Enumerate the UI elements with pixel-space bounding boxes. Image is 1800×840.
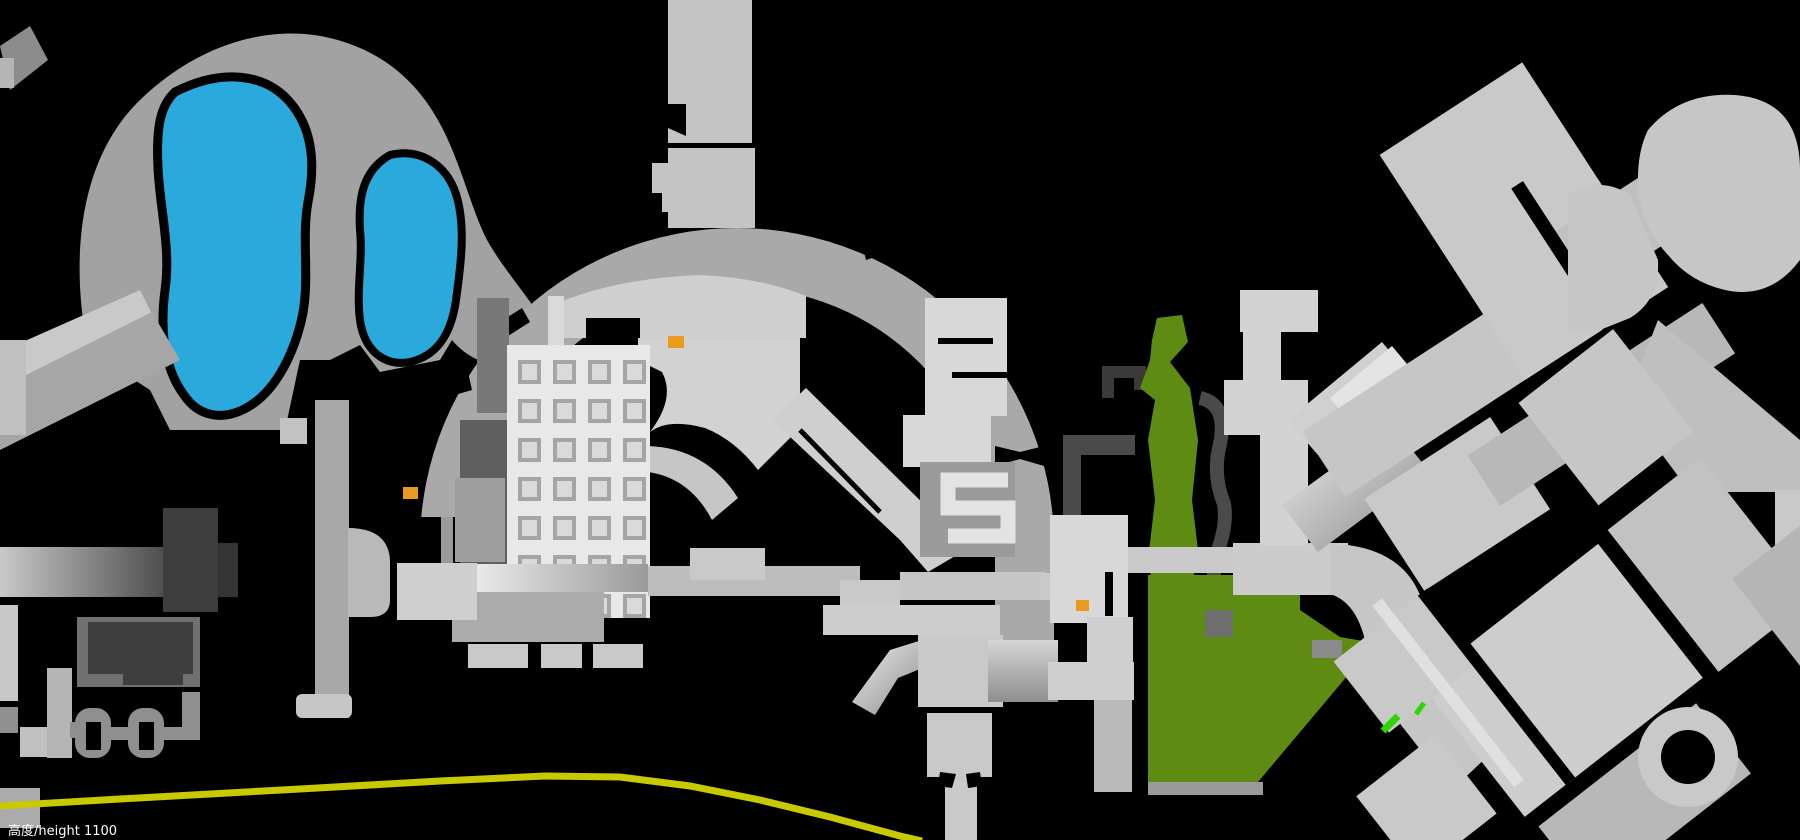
sw-barrel-east-hole (139, 722, 154, 750)
map-canvas[interactable] (0, 0, 1800, 840)
map-legend: 高度/height 1100 比例/scale 1:10 (8, 788, 117, 840)
tower-window-pane (557, 403, 572, 419)
tower-chimney (548, 296, 564, 350)
southeast-courtyard (1638, 707, 1738, 807)
sw-connector-b (160, 727, 184, 740)
cs-horizontal-bar (823, 605, 1000, 635)
tower-window-pane (522, 403, 537, 419)
east-corridor-top (1240, 290, 1318, 332)
orange-marker (1076, 600, 1089, 611)
tower-window-pane (627, 481, 642, 497)
row-dash-a (528, 644, 541, 668)
tower-window-pane (522, 520, 537, 536)
cs-west-stub (690, 548, 765, 580)
sw-l-piece (182, 692, 200, 740)
north-corridor-break (668, 143, 755, 148)
west-edge-block (0, 340, 26, 435)
tower-window-pane (592, 403, 607, 419)
cs-room-lower (927, 713, 992, 777)
interior-bottom-east (900, 572, 1045, 600)
maze-room-west (455, 478, 505, 562)
tower-window-pane (557, 364, 572, 380)
east-corridor-stem (1243, 330, 1281, 382)
tower-window-pane (557, 520, 572, 536)
upper-hall-notch (586, 318, 640, 342)
interior-row-band (468, 644, 643, 668)
tower-window-pane (627, 364, 642, 380)
tower-window-pane (627, 520, 642, 536)
tower-window-pane (627, 442, 642, 458)
tower-window-pane (557, 442, 572, 458)
dark-column-upper (477, 298, 509, 413)
height-label: 高度/height 1100 (8, 823, 117, 840)
map-viewport: 高度/height 1100 比例/scale 1:10 (0, 0, 1800, 840)
sw-left-column (0, 605, 18, 701)
tower-window-pane (557, 481, 572, 497)
tower-window-pane (592, 364, 607, 380)
leg-side-room (397, 563, 477, 620)
lake-west[interactable] (158, 77, 312, 415)
sw-room-interior (88, 622, 193, 674)
cs-door-wedge-b (966, 772, 982, 788)
tower-window-pane (522, 442, 537, 458)
north-corridor-slit (752, 0, 756, 143)
tower-window-pane (522, 364, 537, 380)
stem-side-piece (280, 418, 307, 444)
lake-stem-room (348, 528, 390, 617)
field-gray-block-a (1312, 640, 1342, 658)
sw-vertical-band (47, 668, 72, 758)
field-gray-block-b (1205, 610, 1233, 637)
orange-marker (668, 336, 684, 348)
cross-band (1128, 547, 1233, 573)
tower-window-pane (627, 403, 642, 419)
tower-window-pane (592, 442, 607, 458)
courtyard-hole (1661, 730, 1715, 784)
green-west-corridor (1094, 700, 1132, 792)
sw-room-notch (123, 668, 183, 685)
right-leg-block (988, 640, 1058, 702)
lake-stem-road (315, 400, 349, 718)
west-dark-step (218, 543, 238, 597)
corner-piece-nw2 (0, 58, 14, 88)
field-bottom-strip (1148, 782, 1263, 795)
green-room-c (1048, 662, 1134, 700)
green-room-slit (1105, 572, 1113, 616)
tower-window-pane (592, 520, 607, 536)
stem-cap (296, 694, 352, 718)
row-dash-b (582, 644, 593, 668)
cs-connector (840, 580, 900, 608)
west-dark-block (163, 508, 218, 612)
ne-interior-room (925, 298, 1007, 416)
ne-interior-room-b (903, 415, 991, 467)
tower-window-pane (522, 481, 537, 497)
interior-bottom-west (468, 564, 648, 592)
arch-leg-connector (441, 517, 453, 563)
orange-marker (403, 487, 418, 499)
lake-east[interactable] (359, 153, 462, 362)
sw-small-square (20, 727, 47, 757)
sw-barrel-west-hole (86, 722, 101, 750)
tower-window-pane (627, 598, 642, 614)
tower-window-pane (592, 481, 607, 497)
ne-room-slit-a (938, 338, 993, 344)
sw-edge-bit (0, 707, 18, 733)
ne-room-slit-b (952, 372, 1007, 378)
west-gradient-band (0, 547, 163, 597)
